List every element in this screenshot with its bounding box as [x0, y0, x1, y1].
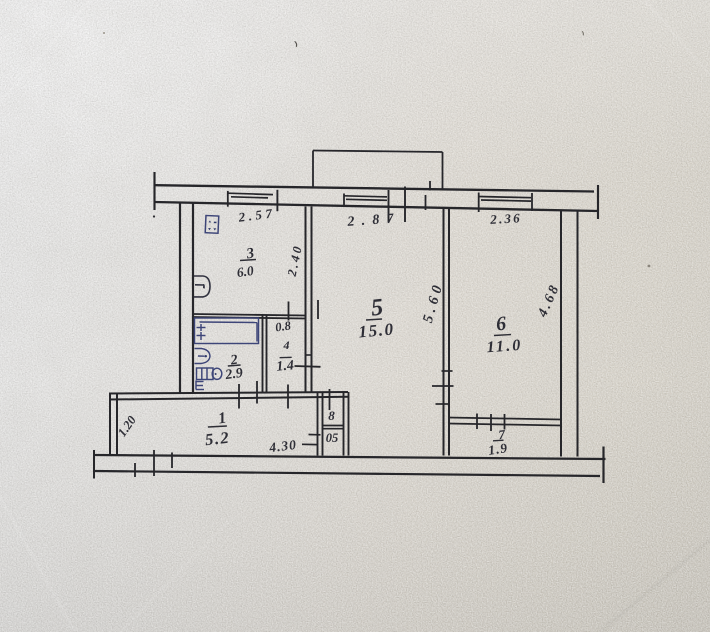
svg-text:0.8: 0.8 [274, 318, 292, 334]
svg-text:1.9: 1.9 [487, 440, 509, 458]
svg-text:5.2: 5.2 [204, 428, 231, 450]
svg-text:15.0: 15.0 [358, 319, 396, 341]
svg-text:1.4: 1.4 [276, 358, 295, 374]
svg-text:4: 4 [283, 338, 290, 352]
svg-text:05: 05 [326, 431, 339, 445]
svg-text:2.9: 2.9 [224, 366, 244, 383]
svg-text:6.0: 6.0 [236, 263, 255, 280]
svg-text:11.0: 11.0 [486, 337, 523, 356]
svg-text:8: 8 [328, 408, 335, 423]
svg-text:2.36: 2.36 [489, 210, 522, 227]
